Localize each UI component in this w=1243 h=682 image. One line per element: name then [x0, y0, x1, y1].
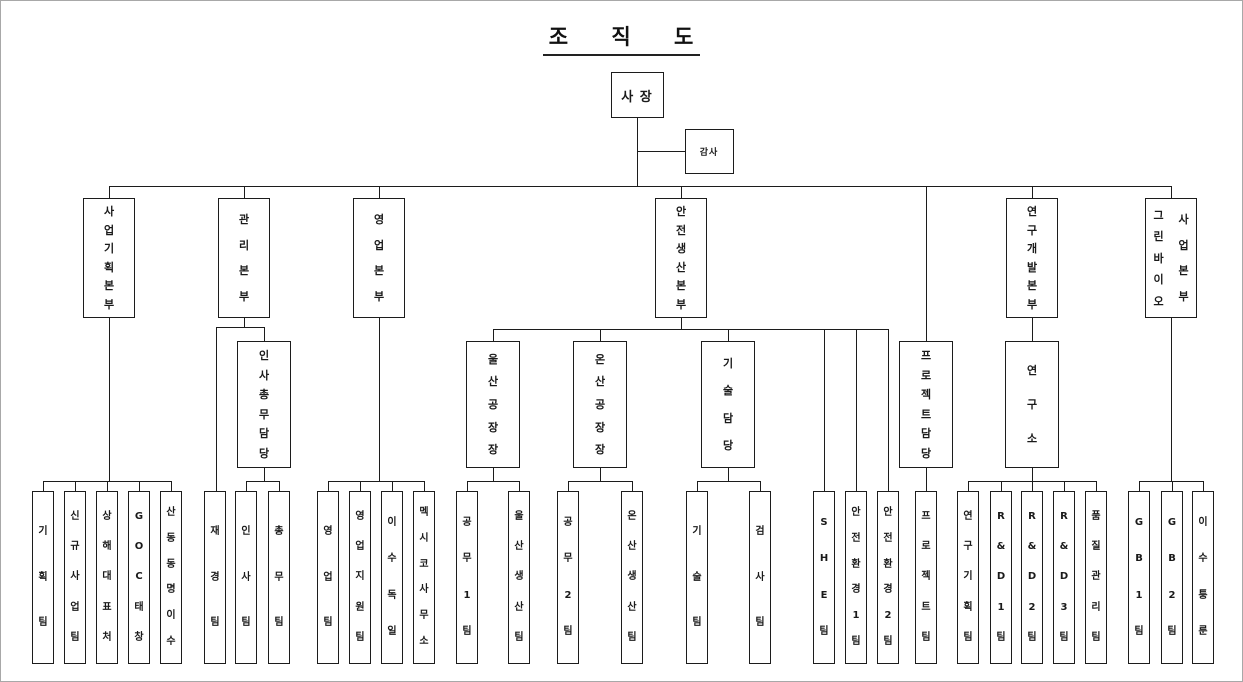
node-label-sales-hq: 영업본부 — [354, 199, 404, 317]
node-label-ulsan-production-team: 울산생산팀 — [509, 492, 529, 663]
node-isu-germany: 이수독일 — [381, 491, 403, 664]
connector-line-v — [493, 468, 494, 482]
node-sales-team: 영업팀 — [317, 491, 339, 664]
node-new-business-team: 신규사업팀 — [64, 491, 86, 664]
node-label-auditor: 감사 — [686, 130, 733, 173]
node-label-green-bio-hq: 그린바이오 — [1146, 199, 1171, 317]
node-technology-team: 기술팀 — [686, 491, 708, 664]
node-green-bio-hq: 그린바이오사업본부 — [1145, 198, 1197, 318]
node-technology-division: 기술담당 — [701, 341, 755, 468]
connector-line-h — [216, 327, 265, 328]
node-research-institute: 연구소 — [1005, 341, 1059, 468]
node-label-research-planning-team: 연구기획팀 — [958, 492, 978, 663]
node-label-onsan-production-team: 온산생산팀 — [622, 492, 642, 663]
node-mexico-office: 멕시코사무소 — [413, 491, 435, 664]
connector-line-v — [926, 468, 927, 492]
chart-title-text: 조 직 도 — [543, 21, 701, 56]
node-goc-taechang: GOC태창 — [128, 491, 150, 664]
node-label-gb-team-2: GB2팀 — [1162, 492, 1182, 663]
connector-line-h — [493, 329, 889, 330]
node-inspection-team: 검사팀 — [749, 491, 771, 664]
node-research-planning-team: 연구기획팀 — [957, 491, 979, 664]
node-safety-environment-team-1: 안전환경1팀 — [845, 491, 867, 664]
connector-line-v — [681, 318, 682, 330]
node-label-hr-team: 인사팀 — [236, 492, 256, 663]
connector-line-v — [888, 329, 889, 492]
node-label-hr-general-affairs: 인사총무담당 — [238, 342, 290, 467]
node-business-planning-hq: 사업기획본부 — [83, 198, 135, 318]
node-label-research-institute: 연구소 — [1006, 342, 1058, 467]
connector-line-v — [637, 118, 638, 187]
node-president: 사 장 — [611, 72, 664, 118]
connector-line-h — [109, 186, 1172, 187]
node-general-affairs-team: 총무팀 — [268, 491, 290, 664]
org-chart-canvas: 조 직 도 사 장감사사업기획본부관리본부영업본부안전생산본부연구개발본부그린바… — [0, 0, 1243, 682]
node-label-she-team: SHE팀 — [814, 492, 834, 663]
connector-line-v — [264, 327, 265, 342]
connector-line-v — [728, 468, 729, 482]
node-finance-team: 재경팀 — [204, 491, 226, 664]
connector-line-v — [244, 318, 245, 328]
node-label-safety-environment-team-1: 안전환경1팀 — [846, 492, 866, 663]
connector-line-v — [1171, 318, 1172, 482]
node-label-onsan-plant-manager: 온산공장장 — [574, 342, 626, 467]
node-label-quality-management-team: 품질관리팀 — [1086, 492, 1106, 663]
connector-line-v — [856, 329, 857, 492]
node-label-management-hq: 관리본부 — [219, 199, 269, 317]
node-engineering-team-1: 공무1팀 — [456, 491, 478, 664]
connector-line-h — [637, 151, 686, 152]
node-label-mexico-office: 멕시코사무소 — [414, 492, 434, 663]
connector-line-v — [109, 318, 110, 482]
node-hr-team: 인사팀 — [235, 491, 257, 664]
node-sales-hq: 영업본부 — [353, 198, 405, 318]
node-label-technology-division: 기술담당 — [702, 342, 754, 467]
node-label-rnd-team-3: R&D3팀 — [1054, 492, 1074, 663]
node-hr-general-affairs: 인사총무담당 — [237, 341, 291, 468]
node-label-safety-production-hq: 안전생산본부 — [656, 199, 706, 317]
connector-line-v — [926, 186, 927, 342]
node-onsan-plant-manager: 온산공장장 — [573, 341, 627, 468]
connector-line-v — [824, 329, 825, 492]
node-safety-environment-team-2: 안전환경2팀 — [877, 491, 899, 664]
connector-line-v — [600, 468, 601, 482]
node-rnd-team-2: R&D2팀 — [1021, 491, 1043, 664]
node-label-rnd-team-2: R&D2팀 — [1022, 492, 1042, 663]
node-shanghai-rep-office: 상해대표처 — [96, 491, 118, 664]
node-gb-team-2: GB2팀 — [1161, 491, 1183, 664]
node-engineering-team-2: 공무2팀 — [557, 491, 579, 664]
connector-line-h — [328, 481, 425, 482]
node-label-green-bio-hq: 사업본부 — [1171, 199, 1196, 317]
node-quality-management-team: 품질관리팀 — [1085, 491, 1107, 664]
connector-line-v — [1032, 318, 1033, 342]
node-label-business-planning-hq: 사업기획본부 — [84, 199, 134, 317]
node-label-engineering-team-1: 공무1팀 — [457, 492, 477, 663]
node-label-safety-environment-team-2: 안전환경2팀 — [878, 492, 898, 663]
node-onsan-production-team: 온산생산팀 — [621, 491, 643, 664]
node-label-rnd-hq: 연구개발본부 — [1007, 199, 1057, 317]
node-label-isu-germany: 이수독일 — [382, 492, 402, 663]
node-label-project-team: 프로젝트팀 — [916, 492, 936, 663]
node-project-division: 프로젝트담당 — [899, 341, 953, 468]
node-she-team: SHE팀 — [813, 491, 835, 664]
node-auditor: 감사 — [685, 129, 734, 174]
node-label-shandong-dongmyeong-isu: 산동동명이수 — [161, 492, 181, 663]
node-gb-team-1: GB1팀 — [1128, 491, 1150, 664]
node-rnd-team-3: R&D3팀 — [1053, 491, 1075, 664]
node-label-shanghai-rep-office: 상해대표처 — [97, 492, 117, 663]
node-rnd-hq: 연구개발본부 — [1006, 198, 1058, 318]
node-isu-tongrun: 이수퉁룬 — [1192, 491, 1214, 664]
node-label-president: 사 장 — [612, 73, 663, 117]
connector-line-v — [216, 327, 217, 492]
node-label-sales-support-team: 영업지원팀 — [350, 492, 370, 663]
node-ulsan-production-team: 울산생산팀 — [508, 491, 530, 664]
node-label-project-division: 프로젝트담당 — [900, 342, 952, 467]
node-label-general-affairs-team: 총무팀 — [269, 492, 289, 663]
node-label-planning-team: 기획팀 — [33, 492, 53, 663]
node-rnd-team-1: R&D1팀 — [990, 491, 1012, 664]
node-label-new-business-team: 신규사업팀 — [65, 492, 85, 663]
chart-title: 조 직 도 — [1, 21, 1242, 56]
node-safety-production-hq: 안전생산본부 — [655, 198, 707, 318]
connector-line-h — [246, 481, 280, 482]
node-management-hq: 관리본부 — [218, 198, 270, 318]
node-label-engineering-team-2: 공무2팀 — [558, 492, 578, 663]
node-label-finance-team: 재경팀 — [205, 492, 225, 663]
connector-line-v — [379, 318, 380, 482]
connector-line-v — [1032, 468, 1033, 482]
node-label-gb-team-1: GB1팀 — [1129, 492, 1149, 663]
node-label-technology-team: 기술팀 — [687, 492, 707, 663]
node-label-sales-team: 영업팀 — [318, 492, 338, 663]
node-label-isu-tongrun: 이수퉁룬 — [1193, 492, 1213, 663]
connector-line-v — [264, 468, 265, 482]
node-planning-team: 기획팀 — [32, 491, 54, 664]
node-label-goc-taechang: GOC태창 — [129, 492, 149, 663]
node-shandong-dongmyeong-isu: 산동동명이수 — [160, 491, 182, 664]
node-label-inspection-team: 검사팀 — [750, 492, 770, 663]
node-sales-support-team: 영업지원팀 — [349, 491, 371, 664]
node-project-team: 프로젝트팀 — [915, 491, 937, 664]
node-label-ulsan-plant-manager: 울산공장장 — [467, 342, 519, 467]
node-label-rnd-team-1: R&D1팀 — [991, 492, 1011, 663]
node-ulsan-plant-manager: 울산공장장 — [466, 341, 520, 468]
